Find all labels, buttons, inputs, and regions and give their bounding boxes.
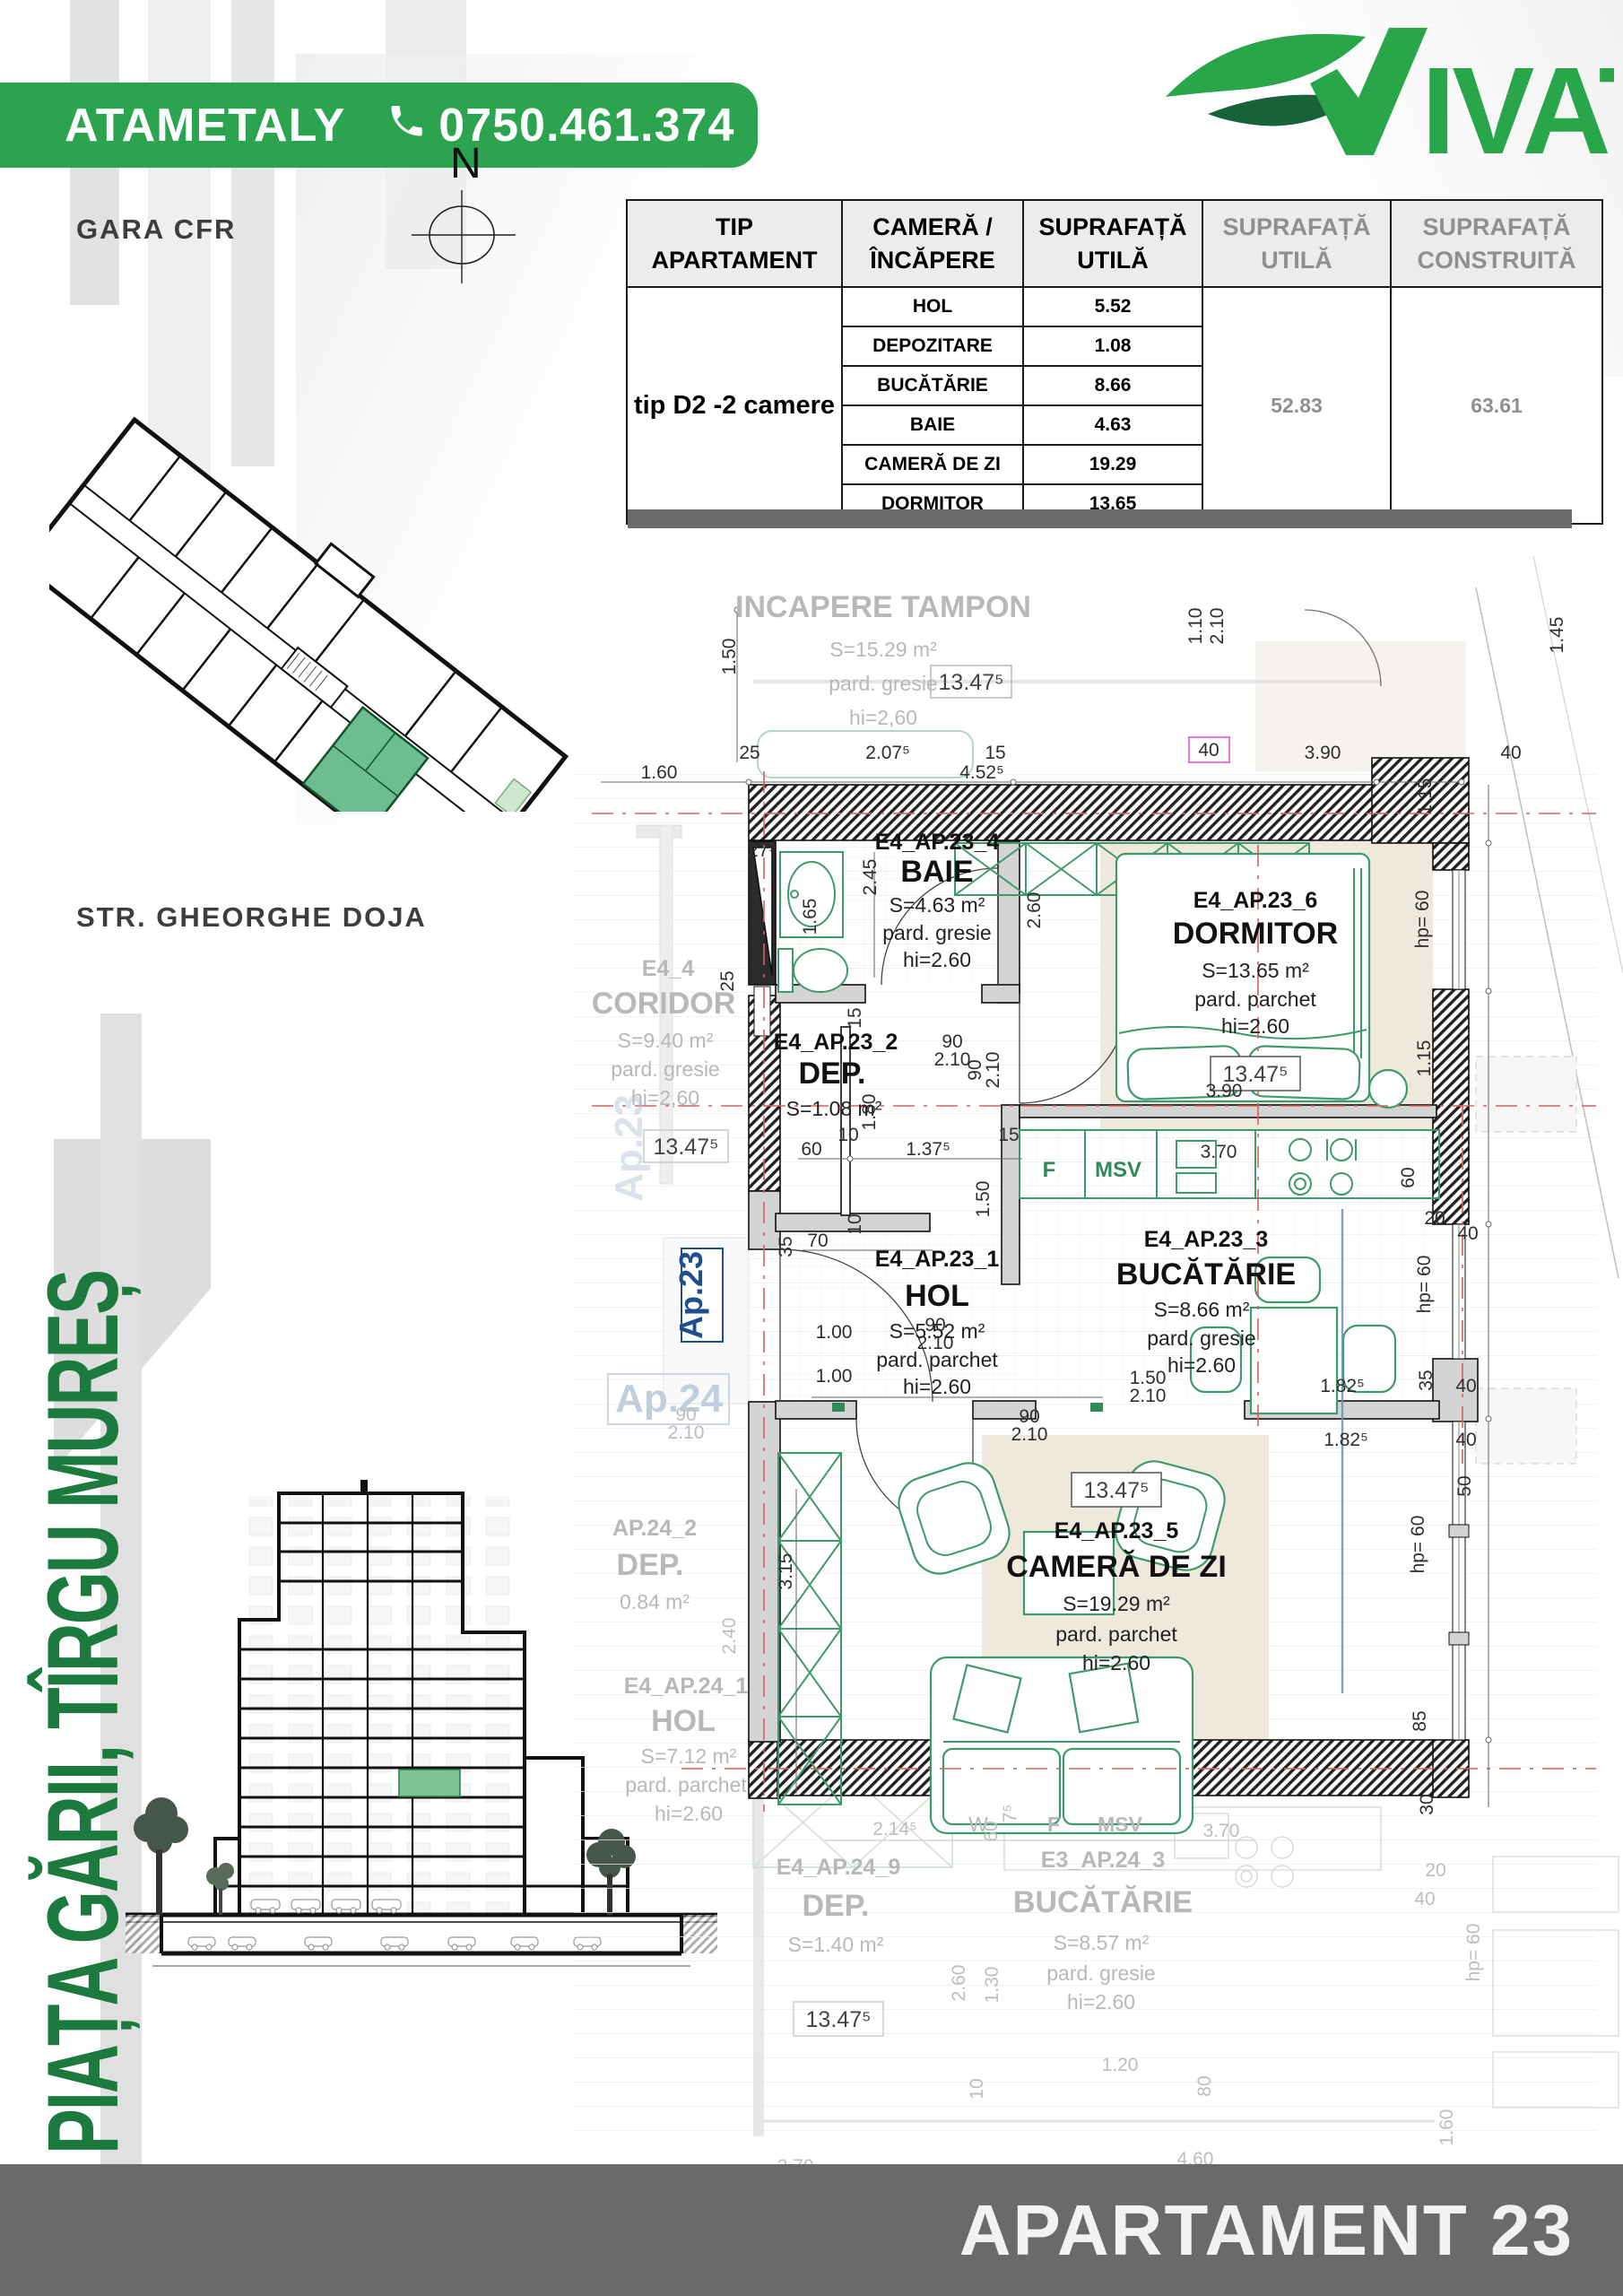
svg-text:E4_4: E4_4 xyxy=(642,956,694,981)
svg-text:1.10: 1.10 xyxy=(1185,608,1206,645)
svg-text:1.20: 1.20 xyxy=(1102,2055,1139,2075)
svg-text:hi=2,60: hi=2,60 xyxy=(849,706,917,729)
svg-text:35: 35 xyxy=(776,1236,796,1257)
highlighted-unit-section xyxy=(399,1770,460,1796)
svg-text:40: 40 xyxy=(1457,1223,1478,1244)
svg-text:pard. parchet: pard. parchet xyxy=(1194,987,1316,1011)
svg-text:S=15.29 m²: S=15.29 m² xyxy=(829,638,937,661)
svg-text:pard. parchet: pard. parchet xyxy=(625,1773,747,1796)
svg-text:15: 15 xyxy=(985,743,1005,763)
svg-text:hi=2.60: hi=2.60 xyxy=(1082,1651,1150,1674)
svg-text:3.90: 3.90 xyxy=(1206,1081,1243,1101)
svg-text:hi=2.60: hi=2.60 xyxy=(1167,1353,1236,1377)
svg-text:13.47⁵: 13.47⁵ xyxy=(806,2007,872,2032)
svg-text:1.50: 1.50 xyxy=(719,639,740,675)
svg-text:25: 25 xyxy=(739,743,759,763)
svg-text:S=13.65 m²: S=13.65 m² xyxy=(1202,959,1309,982)
svg-text:85: 85 xyxy=(1410,1710,1430,1731)
svg-text:50: 50 xyxy=(1454,1475,1475,1496)
svg-text:80: 80 xyxy=(1194,2075,1215,2096)
svg-text:Ap.23: Ap.23 xyxy=(607,1094,651,1202)
svg-text:20: 20 xyxy=(1424,1208,1445,1229)
compass: N xyxy=(408,135,525,291)
svg-text:1.50: 1.50 xyxy=(973,1181,994,1218)
svg-text:DEP.: DEP. xyxy=(799,1057,866,1091)
svg-text:E4_AP.23_2: E4_AP.23_2 xyxy=(774,1030,898,1055)
svg-text:S=4.63 m²: S=4.63 m² xyxy=(890,893,985,917)
svg-text:hp= 60: hp= 60 xyxy=(1463,1924,1484,1982)
svg-text:E4_AP.24_1: E4_AP.24_1 xyxy=(624,1674,749,1699)
svg-text:3.70: 3.70 xyxy=(1203,1821,1240,1841)
svg-text:27⁵: 27⁵ xyxy=(748,840,777,861)
svg-text:1.45: 1.45 xyxy=(1547,617,1567,654)
svg-text:S=8.66 m²: S=8.66 m² xyxy=(1154,1298,1250,1321)
svg-text:hp= 60: hp= 60 xyxy=(1412,891,1433,949)
flyer-page: ATAMETALY 0750.461.374 IVAT N GARA CFR S… xyxy=(0,0,1623,2296)
svg-text:pard. gresie: pard. gresie xyxy=(611,1057,719,1081)
svg-text:DEP.: DEP. xyxy=(617,1548,684,1582)
col-header: SUPRAFAȚĂ UTILĂ xyxy=(1202,200,1391,287)
svg-text:Ap.24: Ap.24 xyxy=(615,1377,723,1421)
svg-text:1.82⁵: 1.82⁵ xyxy=(1320,1376,1365,1396)
svg-text:15: 15 xyxy=(998,1125,1019,1145)
nightstand xyxy=(1369,1070,1407,1108)
svg-text:1.15: 1.15 xyxy=(1414,1040,1435,1077)
svg-text:HOL: HOL xyxy=(651,1704,716,1738)
svg-text:Ap.23: Ap.23 xyxy=(673,1251,709,1339)
svg-text:S=19.29 m²: S=19.29 m² xyxy=(1063,1592,1170,1615)
svg-text:40: 40 xyxy=(1414,1889,1435,1909)
svg-text:2.14⁵: 2.14⁵ xyxy=(872,1819,917,1839)
svg-text:hi=2.60: hi=2.60 xyxy=(1067,1990,1135,2013)
svg-text:E3_AP.24_3: E3_AP.24_3 xyxy=(1041,1848,1166,1873)
svg-text:1.80: 1.80 xyxy=(859,1094,880,1131)
svg-text:S=7.12 m²: S=7.12 m² xyxy=(641,1744,737,1768)
svg-text:2.10: 2.10 xyxy=(1130,1386,1167,1406)
svg-text:2.10: 2.10 xyxy=(1011,1424,1048,1445)
logo-text: IVAT xyxy=(1421,42,1614,180)
svg-text:E4_AP.23_3: E4_AP.23_3 xyxy=(1144,1227,1269,1252)
svg-text:E4_AP.24_9: E4_AP.24_9 xyxy=(777,1855,901,1880)
label-street: STR. GHEORGHE DOJA xyxy=(76,901,427,934)
ap24-label-faded: Ap.24 xyxy=(608,1374,729,1424)
svg-text:BUCĂTĂRIE: BUCĂTĂRIE xyxy=(1013,1885,1193,1919)
svg-text:INCAPERE TAMPON: INCAPERE TAMPON xyxy=(735,590,1031,624)
kitchen-msv: MSV xyxy=(1095,1158,1141,1182)
svg-text:pard. parchet: pard. parchet xyxy=(1055,1622,1177,1646)
svg-text:2.60: 2.60 xyxy=(949,1965,969,2002)
svg-text:35: 35 xyxy=(1416,1370,1436,1390)
svg-text:2.10: 2.10 xyxy=(1207,608,1228,645)
site-plan xyxy=(49,323,587,816)
svg-text:S=9.40 m²: S=9.40 m² xyxy=(618,1029,714,1052)
svg-text:DEP.: DEP. xyxy=(803,1889,870,1923)
col-header: TIP APARTAMENT xyxy=(627,200,842,287)
room-tampon: INCAPERE TAMPON S=15.29 m² pard. gresie … xyxy=(735,590,1031,729)
svg-text:7⁵: 7⁵ xyxy=(1000,1805,1020,1822)
svg-text:AP.24_2: AP.24_2 xyxy=(612,1516,697,1541)
svg-text:pard. gresie: pard. gresie xyxy=(829,672,937,695)
svg-text:1.30: 1.30 xyxy=(982,1967,1002,2004)
svg-text:40: 40 xyxy=(1455,1376,1476,1396)
svg-text:3.90: 3.90 xyxy=(1305,743,1341,763)
svg-text:1.60: 1.60 xyxy=(1436,2109,1457,2146)
col-header: CAMERĂ / ÎNCĂPERE xyxy=(842,200,1023,287)
svg-text:1.15: 1.15 xyxy=(1415,778,1436,815)
svg-text:HOL: HOL xyxy=(905,1279,969,1313)
col-header: SUPRAFAȚĂ CONSTRUITĂ xyxy=(1391,200,1602,287)
bush-icon xyxy=(206,1863,234,1915)
svg-text:2.10: 2.10 xyxy=(917,1333,954,1353)
total-built: 63.61 xyxy=(1391,287,1602,524)
svg-text:40: 40 xyxy=(1500,743,1521,763)
table-row: tip D2 -2 camere HOL 5.52 52.83 63.61 xyxy=(627,287,1602,326)
svg-text:hp= 60: hp= 60 xyxy=(1408,1516,1428,1574)
svg-text:60: 60 xyxy=(801,1139,821,1160)
svg-text:E4_AP.23_4: E4_AP.23_4 xyxy=(875,830,1000,855)
vivat-logo: IVAT xyxy=(1152,4,1614,188)
svg-text:30: 30 xyxy=(1417,1794,1437,1814)
agent-banner: ATAMETALY 0750.461.374 xyxy=(0,83,758,168)
svg-text:S=8.57 m²: S=8.57 m² xyxy=(1054,1931,1150,1954)
svg-text:13.47⁵: 13.47⁵ xyxy=(654,1135,719,1160)
svg-text:hi=2.60: hi=2.60 xyxy=(903,948,971,971)
apartment-footer: APARTAMENT 23 xyxy=(0,2164,1623,2296)
svg-text:70: 70 xyxy=(807,1231,828,1251)
svg-text:15: 15 xyxy=(845,1007,865,1028)
svg-text:MSV: MSV xyxy=(1098,1813,1143,1836)
compass-n: N xyxy=(450,140,482,187)
floor-plan: F MSV xyxy=(628,556,1623,2175)
svg-text:1.37⁵: 1.37⁵ xyxy=(906,1139,950,1160)
svg-text:60: 60 xyxy=(981,1821,1002,1841)
svg-text:1.82⁵: 1.82⁵ xyxy=(1324,1430,1368,1450)
svg-text:1.00: 1.00 xyxy=(816,1366,853,1387)
svg-text:pard. gresie: pard. gresie xyxy=(1147,1326,1255,1350)
svg-text:2.40: 2.40 xyxy=(719,1618,740,1655)
svg-text:2.60: 2.60 xyxy=(1024,892,1045,929)
sofa xyxy=(931,1657,1193,1833)
svg-text:60: 60 xyxy=(1398,1167,1419,1187)
svg-text:1.60: 1.60 xyxy=(641,762,678,783)
areas-table: TIP APARTAMENT CAMERĂ / ÎNCĂPERE SUPRAFA… xyxy=(626,199,1603,525)
svg-text:BAIE: BAIE xyxy=(900,855,973,889)
col-header: SUPRAFAȚĂ UTILĂ xyxy=(1023,200,1202,287)
svg-text:20: 20 xyxy=(1425,1860,1445,1881)
kitchen-f: F xyxy=(1043,1158,1056,1182)
svg-text:40: 40 xyxy=(1198,740,1219,761)
svg-text:2.10: 2.10 xyxy=(668,1422,705,1443)
svg-text:E4_AP.23_5: E4_AP.23_5 xyxy=(1055,1518,1179,1544)
ap23-label-faded: Ap.23 xyxy=(607,1094,651,1202)
svg-text:25: 25 xyxy=(717,970,738,991)
svg-text:BUCĂTĂRIE: BUCĂTĂRIE xyxy=(1116,1257,1296,1291)
svg-text:S=1.40 m²: S=1.40 m² xyxy=(788,1933,884,1956)
svg-text:10: 10 xyxy=(845,1213,865,1234)
svg-text:pard. gresie: pard. gresie xyxy=(1046,1961,1155,1985)
svg-text:13.47⁵: 13.47⁵ xyxy=(939,670,1004,695)
svg-text:3.15: 3.15 xyxy=(776,1553,796,1590)
tree-icon xyxy=(134,1797,188,1915)
svg-text:1.00: 1.00 xyxy=(816,1322,853,1343)
svg-text:10: 10 xyxy=(967,2078,987,2099)
svg-text:pard. gresie: pard. gresie xyxy=(882,921,991,944)
total-useful: 52.83 xyxy=(1202,287,1391,524)
svg-text:hi=2.60: hi=2.60 xyxy=(655,1802,723,1825)
svg-text:E4_AP.23_1: E4_AP.23_1 xyxy=(875,1247,1000,1272)
apartment-title: APARTAMENT 23 xyxy=(959,2189,1574,2272)
svg-text:CAMERĂ DE ZI: CAMERĂ DE ZI xyxy=(1006,1550,1227,1584)
agent-name: ATAMETALY xyxy=(65,99,345,152)
svg-text:3.70: 3.70 xyxy=(1201,1142,1237,1162)
svg-text:DORMITOR: DORMITOR xyxy=(1173,917,1338,951)
svg-text:0.84 m²: 0.84 m² xyxy=(620,1590,690,1613)
svg-text:2.07⁵: 2.07⁵ xyxy=(865,743,910,763)
svg-text:40: 40 xyxy=(1455,1430,1476,1450)
svg-text:hp= 60: hp= 60 xyxy=(1414,1256,1435,1314)
label-gara-cfr: GARA CFR xyxy=(76,213,236,246)
apartment-type: tip D2 -2 camere xyxy=(627,287,842,524)
svg-text:hi=2.60: hi=2.60 xyxy=(903,1375,971,1398)
svg-text:F: F xyxy=(1047,1813,1060,1836)
svg-text:4.52⁵: 4.52⁵ xyxy=(959,762,1004,783)
svg-text:13.47⁵: 13.47⁵ xyxy=(1084,1478,1150,1503)
svg-text:10: 10 xyxy=(838,1125,858,1145)
svg-text:1.65: 1.65 xyxy=(800,899,820,935)
label-plaza-vertical: PIAȚA GĂRII, TÎRGU MUREȘ xyxy=(25,1150,141,2154)
ap23-label: Ap.23 xyxy=(673,1248,723,1342)
table-shadow xyxy=(628,509,1572,528)
svg-text:E4_AP.23_6: E4_AP.23_6 xyxy=(1193,888,1318,913)
svg-text:2.10: 2.10 xyxy=(983,1052,1003,1089)
svg-text:2.45: 2.45 xyxy=(860,859,881,896)
svg-text:hi=2.60: hi=2.60 xyxy=(1221,1014,1289,1038)
svg-text:CORIDOR: CORIDOR xyxy=(592,987,736,1021)
